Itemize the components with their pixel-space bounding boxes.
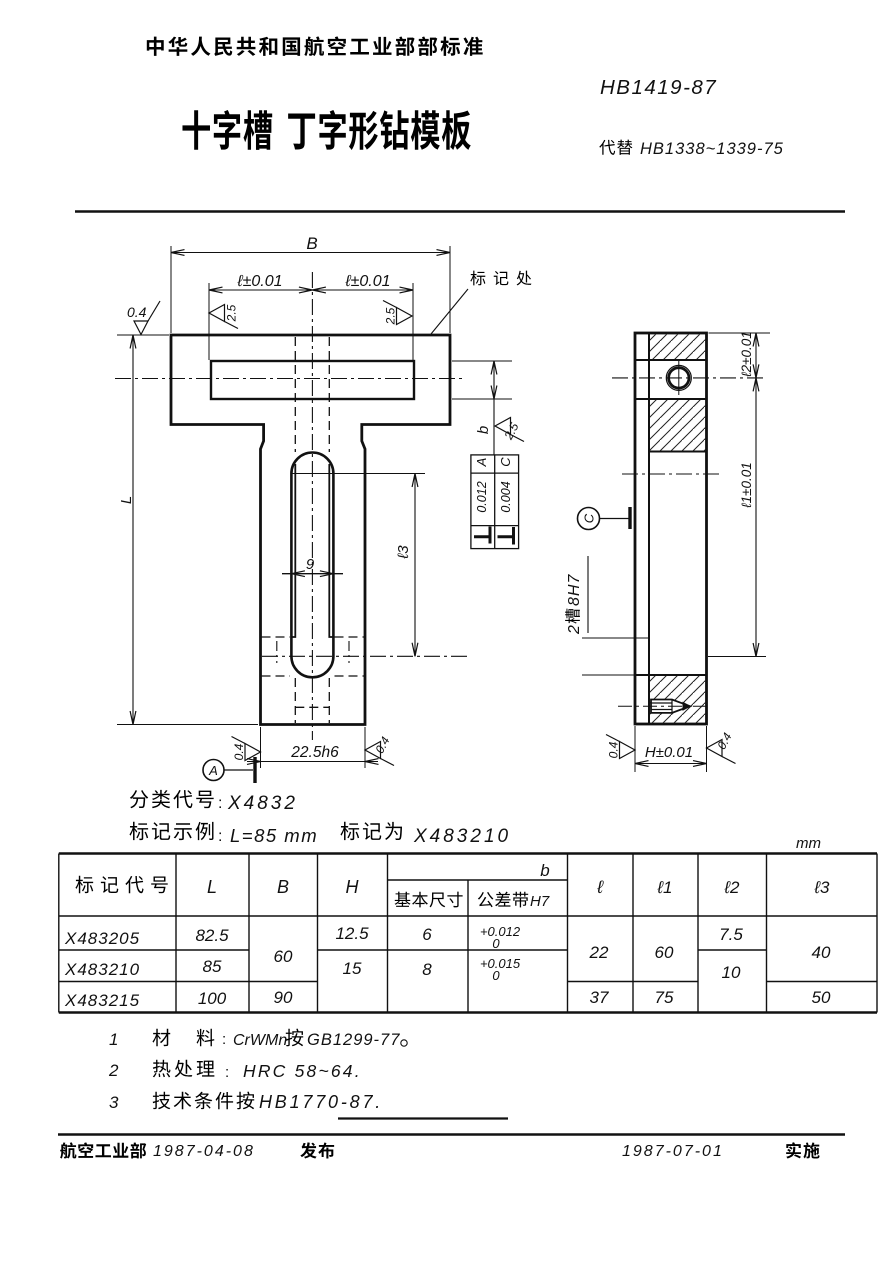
svg-text:ℓ±0.01: ℓ±0.01	[344, 273, 390, 290]
svg-text:L: L	[207, 877, 217, 897]
svg-text:H7: H7	[530, 893, 550, 910]
svg-text:2: 2	[108, 1061, 119, 1080]
svg-text:ℓ3: ℓ3	[395, 545, 412, 560]
svg-text:3: 3	[109, 1093, 119, 1112]
svg-text:b: b	[540, 861, 549, 880]
svg-text:GB1299-77: GB1299-77	[307, 1031, 400, 1049]
svg-text::: :	[218, 795, 222, 812]
svg-text:X4832: X4832	[227, 793, 298, 814]
svg-text:HRC 58~64.: HRC 58~64.	[243, 1061, 362, 1081]
svg-text:0.4: 0.4	[232, 743, 246, 760]
svg-text:7.5: 7.5	[719, 925, 743, 944]
svg-text:0.4: 0.4	[127, 304, 147, 320]
svg-text:40: 40	[812, 943, 831, 962]
svg-text:0.4: 0.4	[607, 741, 621, 758]
svg-text:22.5h6: 22.5h6	[290, 744, 339, 761]
svg-text:ℓ±0.01: ℓ±0.01	[236, 273, 282, 290]
svg-text:L: L	[118, 496, 135, 504]
svg-text:10: 10	[722, 963, 741, 982]
svg-text:0: 0	[492, 968, 500, 983]
svg-text:B: B	[277, 877, 289, 897]
svg-text:0: 0	[492, 936, 500, 951]
svg-text:12.5: 12.5	[335, 924, 369, 943]
svg-text::: :	[225, 1064, 229, 1081]
svg-text:X483215: X483215	[64, 991, 140, 1010]
svg-text:H±0.01: H±0.01	[645, 744, 693, 761]
svg-text:+0.012: +0.012	[480, 924, 521, 939]
svg-text:90: 90	[274, 988, 293, 1007]
svg-text:ℓ3: ℓ3	[814, 878, 830, 897]
svg-text:0.012: 0.012	[475, 481, 489, 512]
svg-text:60: 60	[274, 947, 293, 966]
svg-text:L=85 mm: L=85 mm	[230, 825, 318, 846]
svg-text:1: 1	[109, 1030, 118, 1049]
svg-text:2: 2	[566, 624, 583, 635]
svg-text:ℓ: ℓ	[596, 877, 604, 897]
svg-text:CrWMn: CrWMn	[233, 1032, 287, 1049]
svg-text:60: 60	[655, 943, 674, 962]
svg-text:ℓ2: ℓ2	[724, 878, 740, 897]
svg-text:0.004: 0.004	[499, 481, 513, 512]
svg-text:X483205: X483205	[64, 929, 140, 948]
svg-text:22: 22	[589, 943, 609, 962]
svg-text:ℓ1: ℓ1	[657, 878, 673, 897]
svg-text:A: A	[474, 458, 489, 468]
svg-text:15: 15	[343, 959, 362, 978]
svg-text:X483210: X483210	[413, 826, 511, 847]
svg-text:1987-07-01: 1987-07-01	[622, 1143, 724, 1160]
svg-text:HB1419-87: HB1419-87	[600, 76, 717, 99]
svg-text:82.5: 82.5	[195, 926, 229, 945]
svg-text:50: 50	[812, 988, 831, 1007]
svg-text:HB1338~1339-75: HB1338~1339-75	[640, 140, 784, 158]
svg-text:C: C	[582, 513, 597, 523]
svg-text:85: 85	[203, 957, 222, 976]
svg-text:B: B	[306, 234, 317, 253]
svg-text:1987-04-08: 1987-04-08	[153, 1143, 255, 1160]
svg-text:C: C	[498, 457, 513, 467]
svg-text:A: A	[208, 763, 218, 778]
svg-text:+0.015: +0.015	[480, 956, 521, 971]
svg-text:ℓ1±0.01: ℓ1±0.01	[739, 462, 754, 508]
svg-text:8H7: 8H7	[566, 574, 583, 606]
svg-text:8: 8	[422, 960, 432, 979]
svg-text:mm: mm	[796, 835, 821, 852]
svg-text:2.5: 2.5	[225, 304, 239, 322]
svg-text:HB1770-87.: HB1770-87.	[259, 1092, 383, 1112]
svg-text:2.5: 2.5	[384, 307, 398, 325]
svg-text::: :	[222, 1031, 226, 1048]
svg-text:100: 100	[198, 989, 227, 1008]
svg-text:X483210: X483210	[64, 960, 140, 979]
svg-text:H: H	[346, 877, 360, 897]
svg-text:6: 6	[422, 925, 432, 944]
svg-text::: :	[218, 828, 222, 845]
svg-text:ℓ2±0.01: ℓ2±0.01	[739, 331, 754, 377]
svg-text:75: 75	[655, 988, 674, 1007]
svg-text:b: b	[475, 426, 492, 434]
svg-text:37: 37	[590, 988, 609, 1007]
svg-text:9: 9	[306, 556, 315, 573]
